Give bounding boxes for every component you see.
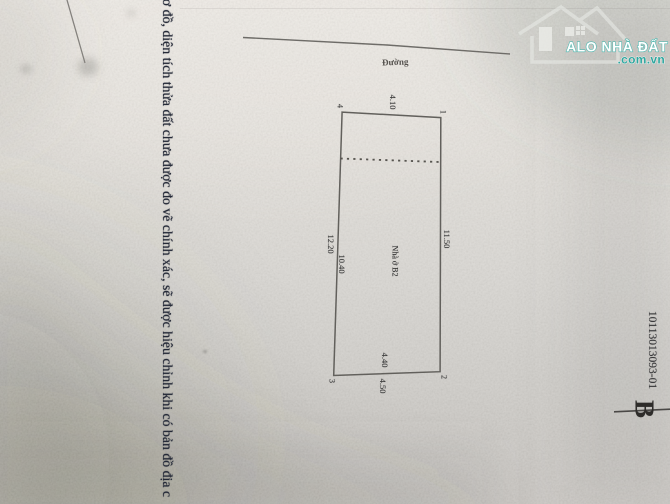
svg-text:.com.vn: .com.vn xyxy=(618,53,665,67)
